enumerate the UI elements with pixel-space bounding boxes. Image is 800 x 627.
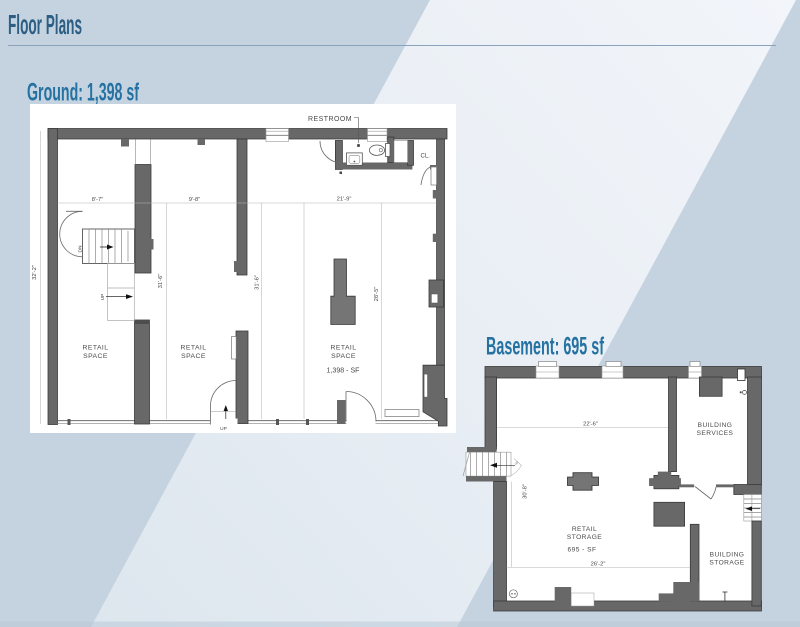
svg-text:31'-6": 31'-6" (255, 275, 261, 290)
svg-text:26'-2": 26'-2" (591, 562, 606, 568)
svg-text:Ground: 1,398 sf: Ground: 1,398 sf (27, 79, 139, 107)
svg-text:30'-8": 30'-8" (523, 484, 529, 499)
svg-text:STORAGE: STORAGE (567, 534, 602, 541)
svg-text:CL.: CL. (421, 154, 431, 160)
svg-text:RETAIL: RETAIL (331, 345, 357, 352)
svg-text:SPACE: SPACE (83, 353, 108, 360)
svg-text:SERVICES: SERVICES (697, 430, 734, 437)
svg-text:21'-9": 21'-9" (337, 197, 352, 203)
svg-text:UP: UP (100, 294, 106, 301)
svg-text:1,398 - SF: 1,398 - SF (327, 368, 360, 375)
svg-text:STORAGE: STORAGE (709, 559, 744, 566)
svg-text:28'-5": 28'-5" (374, 287, 380, 302)
svg-text:Basement: 695 sf: Basement: 695 sf (486, 333, 604, 361)
svg-text:RETAIL: RETAIL (181, 345, 207, 352)
svg-text:32'-2": 32'-2" (32, 265, 38, 280)
svg-text:RETAIL: RETAIL (83, 345, 109, 352)
svg-text:BUILDING: BUILDING (710, 552, 745, 559)
svg-text:31'-6": 31'-6" (158, 274, 164, 289)
svg-text:Floor Plans: Floor Plans (8, 9, 82, 40)
svg-text:BUILDING: BUILDING (698, 422, 733, 429)
svg-text:SPACE: SPACE (331, 353, 356, 360)
svg-text:RESTROOM: RESTROOM (308, 116, 352, 123)
svg-text:695 - SF: 695 - SF (568, 547, 597, 554)
svg-text:SPACE: SPACE (181, 353, 206, 360)
svg-text:8'-7": 8'-7" (92, 197, 104, 203)
svg-text:9'-8": 9'-8" (189, 197, 201, 203)
svg-text:UP: UP (220, 426, 227, 432)
svg-text:22'-6": 22'-6" (583, 422, 598, 428)
svg-text:DN: DN (78, 245, 84, 252)
svg-text:RETAIL: RETAIL (572, 526, 597, 533)
